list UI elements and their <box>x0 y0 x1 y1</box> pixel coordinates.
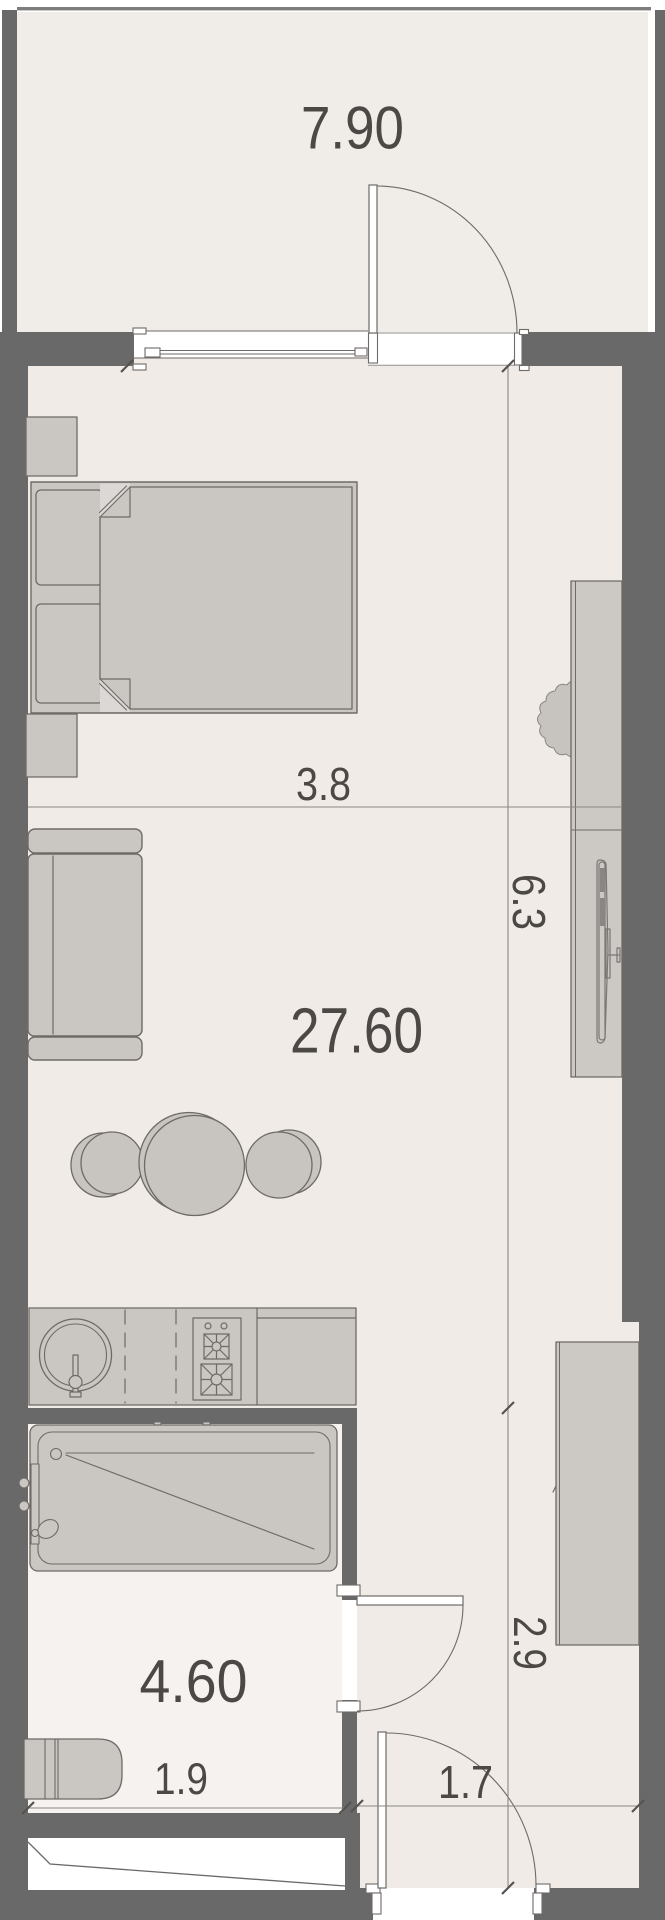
svg-text:4.60: 4.60 <box>140 1647 248 1715</box>
svg-text:7.90: 7.90 <box>301 94 404 162</box>
svg-text:6.3: 6.3 <box>503 874 555 930</box>
svg-text:1.7: 1.7 <box>438 1756 493 1808</box>
svg-text:3.8: 3.8 <box>296 758 351 810</box>
svg-text:1.9: 1.9 <box>154 1755 208 1804</box>
svg-text:27.60: 27.60 <box>290 995 423 1067</box>
svg-text:2.9: 2.9 <box>504 1616 556 1670</box>
